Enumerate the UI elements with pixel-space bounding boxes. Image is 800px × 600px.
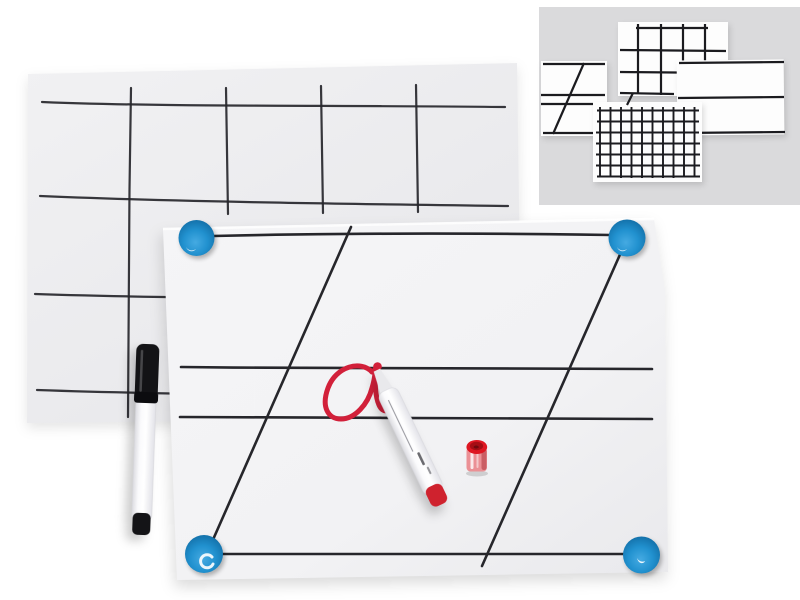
- magnet-bottom-left: [185, 535, 223, 573]
- pattern-options-inset: [539, 7, 800, 205]
- front-sheet-surface: [163, 219, 668, 580]
- red-marker-cap: [466, 440, 488, 477]
- black-marker-butt: [132, 513, 151, 536]
- black-marker-body: [132, 396, 157, 522]
- magnet-top-left: [179, 220, 215, 256]
- magnet-top-right: [609, 220, 646, 257]
- cap-top-hole: [474, 446, 479, 449]
- photo-canvas: [0, 0, 800, 600]
- magnet-bottom-right: [623, 537, 660, 574]
- black-marker-cap-lip: [134, 392, 158, 404]
- front-whiteboard-sheet: [163, 219, 668, 580]
- whiteboard-product-photo: [0, 0, 800, 600]
- inset-variant-fine-grid: [593, 102, 702, 182]
